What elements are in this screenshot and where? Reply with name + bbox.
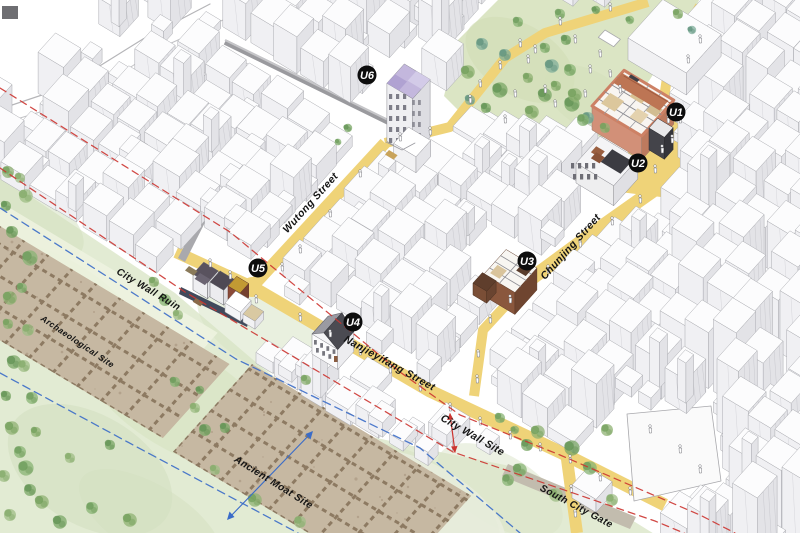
svg-text:U6: U6: [360, 70, 375, 82]
svg-text:U4: U4: [346, 317, 360, 329]
svg-text:U1: U1: [669, 107, 683, 119]
svg-text:U5: U5: [251, 263, 266, 275]
svg-text:U3: U3: [520, 256, 534, 268]
svg-text:U2: U2: [631, 158, 645, 170]
